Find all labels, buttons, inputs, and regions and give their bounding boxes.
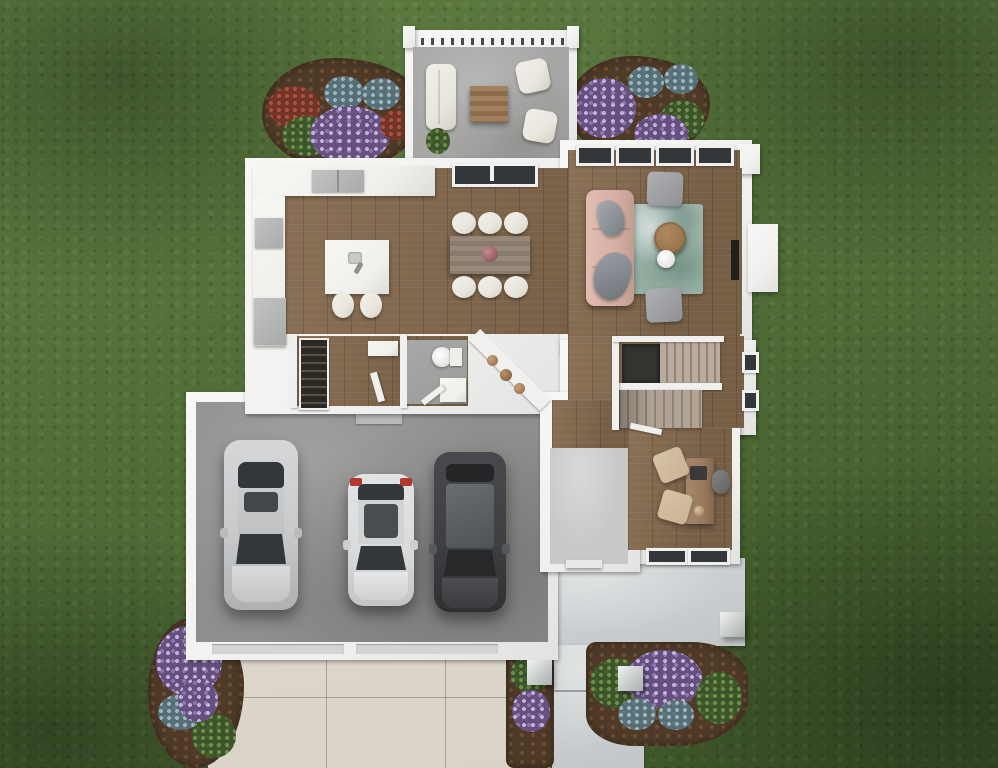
patio-armchair-bottom bbox=[521, 107, 558, 144]
patio-sofa-seam bbox=[438, 70, 440, 124]
stairwell-void bbox=[622, 344, 660, 384]
dining-chair-3 bbox=[504, 212, 528, 234]
suvw-windshield bbox=[356, 546, 406, 570]
console-decor-1 bbox=[487, 355, 498, 366]
driveway bbox=[208, 648, 550, 768]
toilet-bowl bbox=[432, 347, 452, 367]
kitchen-wall-oven bbox=[255, 218, 283, 248]
suvw-mirror-left bbox=[343, 540, 351, 550]
stairs-left-wall bbox=[612, 340, 619, 430]
kitchen-stool-1 bbox=[332, 292, 354, 318]
suvw-panoroof bbox=[364, 504, 398, 538]
suvd-hood bbox=[442, 578, 498, 608]
stair-hall-window-1 bbox=[742, 352, 759, 373]
dining-chair-5 bbox=[478, 276, 502, 298]
dining-chair-1 bbox=[452, 212, 476, 234]
garage-door-right bbox=[356, 644, 498, 654]
living-armchair-bottom bbox=[645, 287, 683, 323]
kitchen-refrigerator bbox=[254, 298, 286, 344]
suvd-roof-glass bbox=[446, 484, 494, 548]
office-laptop bbox=[690, 466, 707, 480]
pergola-beam bbox=[411, 38, 571, 45]
patio-plant bbox=[426, 128, 450, 154]
bath-wall-left bbox=[400, 334, 407, 408]
dining-centerpiece bbox=[482, 246, 498, 262]
suvd-windshield bbox=[444, 550, 496, 576]
fireplace-bumpout bbox=[748, 224, 778, 292]
porch-column-1 bbox=[527, 660, 552, 685]
kitchen-cooktop-divider bbox=[337, 170, 339, 192]
stairs-top-wall bbox=[612, 336, 724, 342]
porch-column-2 bbox=[618, 666, 643, 691]
patio-sofa bbox=[426, 64, 456, 130]
living-armchair-top bbox=[646, 171, 683, 206]
mudroom-wall-left bbox=[290, 334, 297, 408]
dining-chair-6 bbox=[504, 276, 528, 298]
suvw-mirror-right bbox=[410, 540, 418, 550]
garage-door-left bbox=[212, 644, 344, 654]
front-door bbox=[566, 560, 602, 568]
living-window-2 bbox=[616, 145, 654, 166]
sedan-hood bbox=[232, 566, 290, 602]
stairs-upper-flight bbox=[660, 342, 720, 384]
patio-coffee-table bbox=[470, 86, 508, 122]
mudroom-bench bbox=[368, 341, 398, 356]
sedan-rear-glass bbox=[238, 462, 284, 488]
pantry-shelving bbox=[299, 338, 329, 410]
suvd-mirror-right bbox=[502, 544, 510, 554]
fireplace-firebox bbox=[731, 240, 739, 280]
living-window-1 bbox=[576, 145, 614, 166]
office-desk-decor bbox=[694, 506, 704, 516]
garage-entry-landing bbox=[356, 414, 402, 424]
suvd-rear-glass bbox=[446, 464, 494, 482]
office-window-1 bbox=[646, 548, 688, 565]
porch-column-3 bbox=[720, 612, 745, 637]
kitchen-stool-2 bbox=[360, 292, 382, 318]
office-chair bbox=[712, 470, 730, 494]
sedan-sunroof bbox=[244, 492, 278, 512]
dining-chair-4 bbox=[452, 276, 476, 298]
car-suv-white bbox=[348, 474, 414, 606]
car-suv-dark bbox=[434, 452, 506, 612]
console-decor-2 bbox=[500, 369, 512, 381]
pergola-post-left bbox=[403, 26, 415, 48]
sedan-windshield bbox=[236, 534, 286, 564]
flower-bed-front-porch bbox=[586, 642, 748, 746]
kitchen-sliding-door-mullion bbox=[490, 163, 494, 181]
living-side-table bbox=[657, 250, 675, 268]
living-window-4 bbox=[696, 145, 734, 166]
pergola-post-right bbox=[567, 26, 579, 48]
stair-hall-window-2 bbox=[742, 390, 759, 411]
toilet-tank bbox=[450, 348, 462, 366]
floor-plan-render bbox=[0, 0, 998, 768]
dining-chair-2 bbox=[478, 212, 502, 234]
suvw-rear-glass bbox=[358, 484, 404, 500]
sedan-mirror-left bbox=[220, 528, 228, 538]
kitchen-sliding-door bbox=[452, 163, 538, 187]
stairs-mid-wall bbox=[618, 383, 722, 390]
car-sedan-silver bbox=[224, 440, 298, 610]
suvw-hood bbox=[354, 572, 408, 600]
living-window-3 bbox=[656, 145, 694, 166]
suvd-mirror-left bbox=[429, 544, 437, 554]
living-coffee-table bbox=[654, 222, 686, 254]
office-window-2 bbox=[688, 548, 730, 565]
floor-foyer bbox=[550, 448, 628, 564]
sedan-mirror-right bbox=[294, 528, 302, 538]
console-decor-3 bbox=[514, 383, 525, 394]
